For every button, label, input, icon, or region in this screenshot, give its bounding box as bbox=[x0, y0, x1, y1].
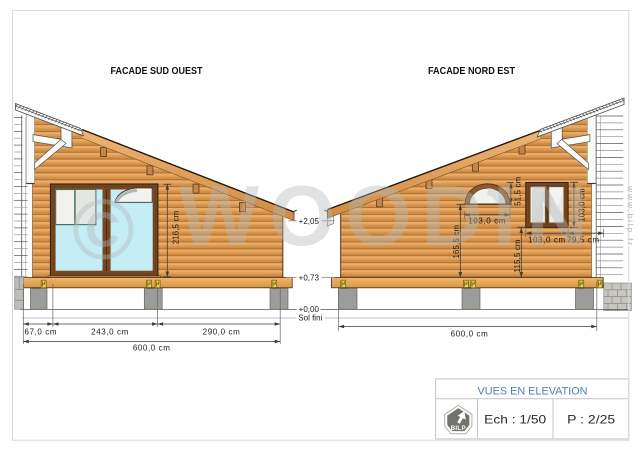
svg-text:WOODIN: WOODIN bbox=[179, 169, 598, 264]
svg-text:600,0 cm: 600,0 cm bbox=[133, 344, 171, 353]
svg-text:©: © bbox=[72, 183, 135, 278]
svg-text:Sol fini: Sol fini bbox=[298, 313, 322, 322]
svg-text:FACADE SUD OUEST: FACADE SUD OUEST bbox=[111, 66, 203, 77]
svg-text:VUES EN ELEVATION: VUES EN ELEVATION bbox=[478, 385, 588, 397]
svg-text:290,0 cm: 290,0 cm bbox=[203, 328, 241, 337]
svg-text:243,0 cm: 243,0 cm bbox=[91, 328, 129, 337]
svg-text:BILP: BILP bbox=[451, 425, 466, 432]
svg-text:67,0 cm: 67,0 cm bbox=[25, 328, 58, 337]
svg-text:FACADE NORD EST: FACADE NORD EST bbox=[428, 66, 515, 77]
svg-text:+0,73: +0,73 bbox=[299, 273, 320, 282]
svg-text:600,0 cm: 600,0 cm bbox=[451, 330, 489, 339]
svg-text:www.bilp.fr: www.bilp.fr bbox=[626, 185, 636, 247]
svg-text:Ech : 1/50: Ech : 1/50 bbox=[484, 412, 546, 426]
svg-text:P : 2/25: P : 2/25 bbox=[567, 412, 615, 426]
